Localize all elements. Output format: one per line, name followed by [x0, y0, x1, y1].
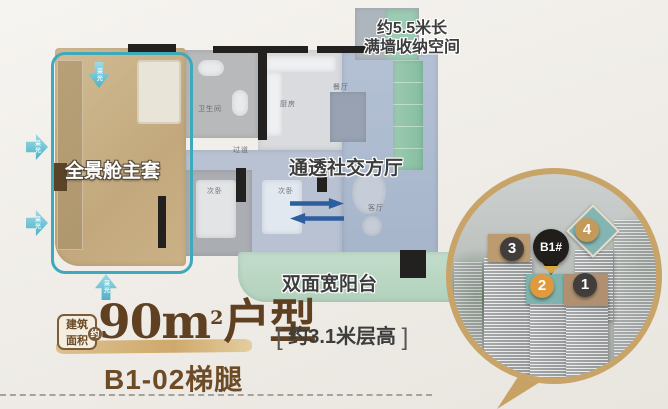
kitchen-counter — [266, 56, 336, 72]
storage-label-line1: 约5.5米长 — [352, 19, 472, 38]
dashed-divider — [0, 394, 432, 396]
wall-segment — [236, 168, 246, 202]
room-tag-living: 客厅 — [368, 203, 384, 213]
tower-marker-1: 1 — [573, 273, 597, 297]
area-badge: 建筑 面积 约 — [57, 314, 97, 350]
bath-fixture-2 — [232, 90, 248, 116]
wall-segment — [258, 50, 267, 140]
tower-building-2 — [530, 292, 566, 384]
sofa-2 — [362, 216, 382, 236]
area-sup: 2 — [210, 307, 223, 329]
b1-pin: B1# — [533, 229, 569, 265]
site-inset-circle: B1# 3 4 2 1 — [446, 168, 662, 384]
master-suite-label: 全景舱主套 — [65, 156, 160, 183]
b1-pin-chevron — [543, 266, 559, 274]
storage-label-line2: 满墙收纳空间 — [352, 38, 472, 57]
wall-segment — [400, 250, 426, 278]
height-note-text: 约3.1米层高 — [288, 326, 396, 348]
light-arrow-left-1: 采光 — [26, 134, 48, 160]
dining-table — [330, 92, 366, 142]
tower-marker-2: 2 — [530, 274, 554, 298]
light-arrow-left-2: 采光 — [26, 210, 48, 236]
room-tag-bathroom: 卫生间 — [198, 104, 222, 114]
room-tag-bedroom-b: 次卧 — [278, 186, 294, 196]
storage-label: 约5.5米长 满墙收纳空间 — [352, 19, 472, 57]
bracket-close: ] — [402, 324, 409, 351]
floor-plan: 餐厅 厨房 卫生间 次卧 次卧 客厅 过道 采光 采光 采光 采光 约5.5米长… — [40, 0, 440, 312]
floor-height-note: [ 约3.1米层高 ] — [276, 320, 408, 352]
tower-building-3 — [484, 258, 532, 384]
bracket-open: [ — [276, 324, 283, 351]
room-tag-dining: 餐厅 — [333, 82, 349, 92]
tower-building-back-left — [454, 262, 482, 384]
room-tag-passage: 过道 — [233, 145, 249, 155]
balcony-label: 双面宽阳台 — [282, 269, 377, 296]
tower-marker-4: 4 — [575, 218, 599, 242]
area-value: 90m — [98, 295, 210, 350]
living-label: 通透社交方厅 — [289, 153, 403, 180]
tower-building-back-right — [614, 220, 662, 384]
tower-marker-3: 3 — [500, 237, 524, 261]
room-tag-bedroom-a: 次卧 — [207, 186, 223, 196]
bath-fixture — [198, 60, 224, 76]
room-tag-kitchen: 厨房 — [280, 99, 296, 109]
tower-building-1 — [566, 296, 608, 384]
unit-code: B1-02梯腿 — [104, 358, 243, 398]
